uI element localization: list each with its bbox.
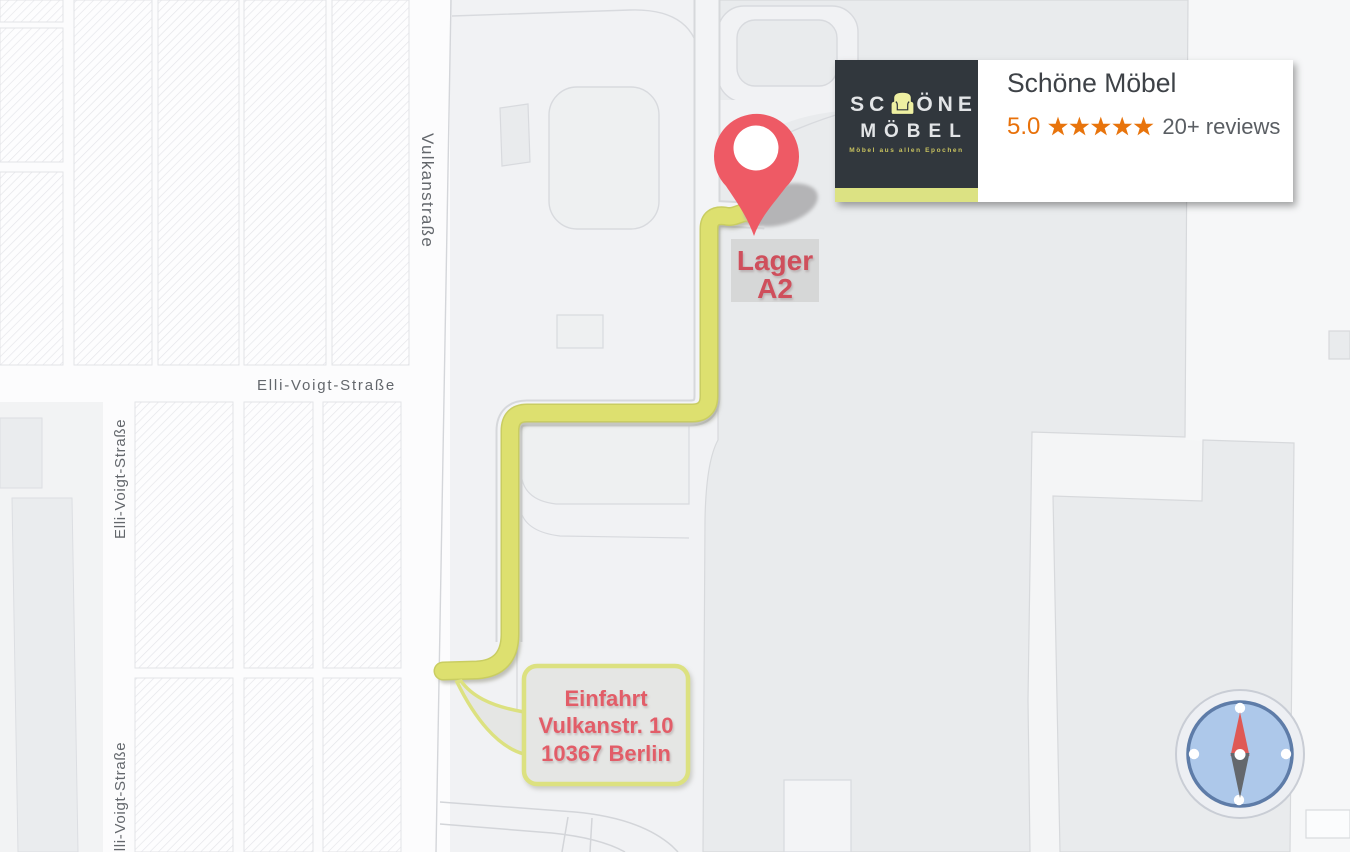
svg-text:Elli-Voigt-Straße: Elli-Voigt-Straße bbox=[257, 377, 396, 394]
svg-text:10367 Berlin: 10367 Berlin bbox=[541, 741, 671, 766]
svg-text:Elli-Voigt-Straße: Elli-Voigt-Straße bbox=[112, 742, 129, 852]
svg-text:Vulkanstraße: Vulkanstraße bbox=[418, 133, 437, 248]
svg-text:Elli-Voigt-Straße: Elli-Voigt-Straße bbox=[112, 419, 129, 539]
svg-text:Einfahrt: Einfahrt bbox=[564, 686, 648, 711]
svg-text:Vulkanstr. 10: Vulkanstr. 10 bbox=[539, 713, 674, 738]
svg-text:Lager: Lager bbox=[737, 245, 813, 276]
svg-text:A2: A2 bbox=[757, 273, 793, 304]
